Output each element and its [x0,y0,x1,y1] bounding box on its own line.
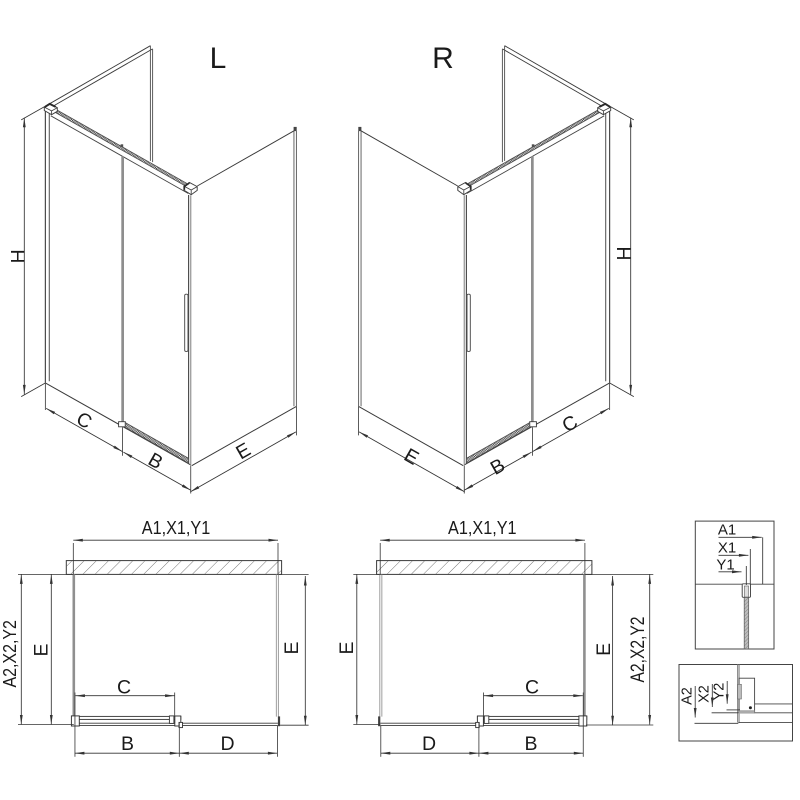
svg-text:L: L [210,42,227,75]
svg-text:B: B [524,733,537,755]
svg-text:X2: X2 [697,685,713,703]
svg-text:A1: A1 [718,521,736,538]
svg-text:C: C [525,677,539,699]
svg-text:A1,X1,Y1: A1,X1,Y1 [448,517,517,538]
svg-text:C: C [558,411,581,437]
svg-text:E: E [336,641,358,654]
svg-text:B: B [121,733,134,755]
svg-text:A2: A2 [680,687,696,705]
svg-text:H: H [8,249,30,263]
svg-text:E: E [31,643,53,656]
svg-text:Y1: Y1 [716,556,734,573]
svg-text:H: H [614,246,636,260]
svg-text:D: D [422,733,436,755]
svg-text:E: E [232,439,254,465]
svg-text:R: R [432,42,454,75]
svg-text:Y2: Y2 [712,683,728,701]
svg-text:D: D [220,733,234,755]
svg-text:C: C [72,408,95,434]
svg-text:A2,X2,Y2: A2,X2,Y2 [627,617,649,683]
svg-text:E: E [593,643,615,656]
svg-text:E: E [281,641,303,654]
svg-text:A2,X2,Y2: A2,X2,Y2 [0,620,20,688]
svg-text:C: C [117,676,131,698]
svg-text:X1: X1 [718,540,736,557]
svg-text:B: B [144,449,166,475]
svg-text:A1,X1,Y1: A1,X1,Y1 [142,517,211,538]
